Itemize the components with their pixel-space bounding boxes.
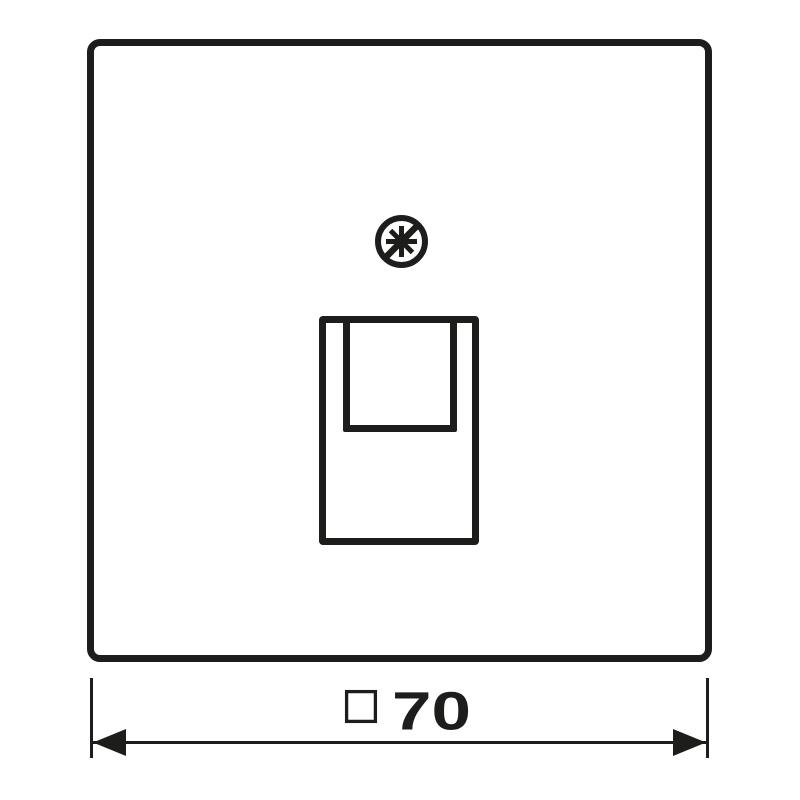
dimension-annotation: 70	[80, 668, 720, 778]
dimension-value: 70	[392, 682, 471, 742]
technical-drawing-canvas: 70	[0, 0, 800, 800]
square-symbol-icon	[347, 692, 376, 722]
dimension-arrowhead-right	[673, 729, 706, 756]
screw-icon	[369, 209, 434, 274]
dimension-arrowhead-left	[93, 729, 126, 756]
rj45-socket-window	[343, 316, 457, 432]
